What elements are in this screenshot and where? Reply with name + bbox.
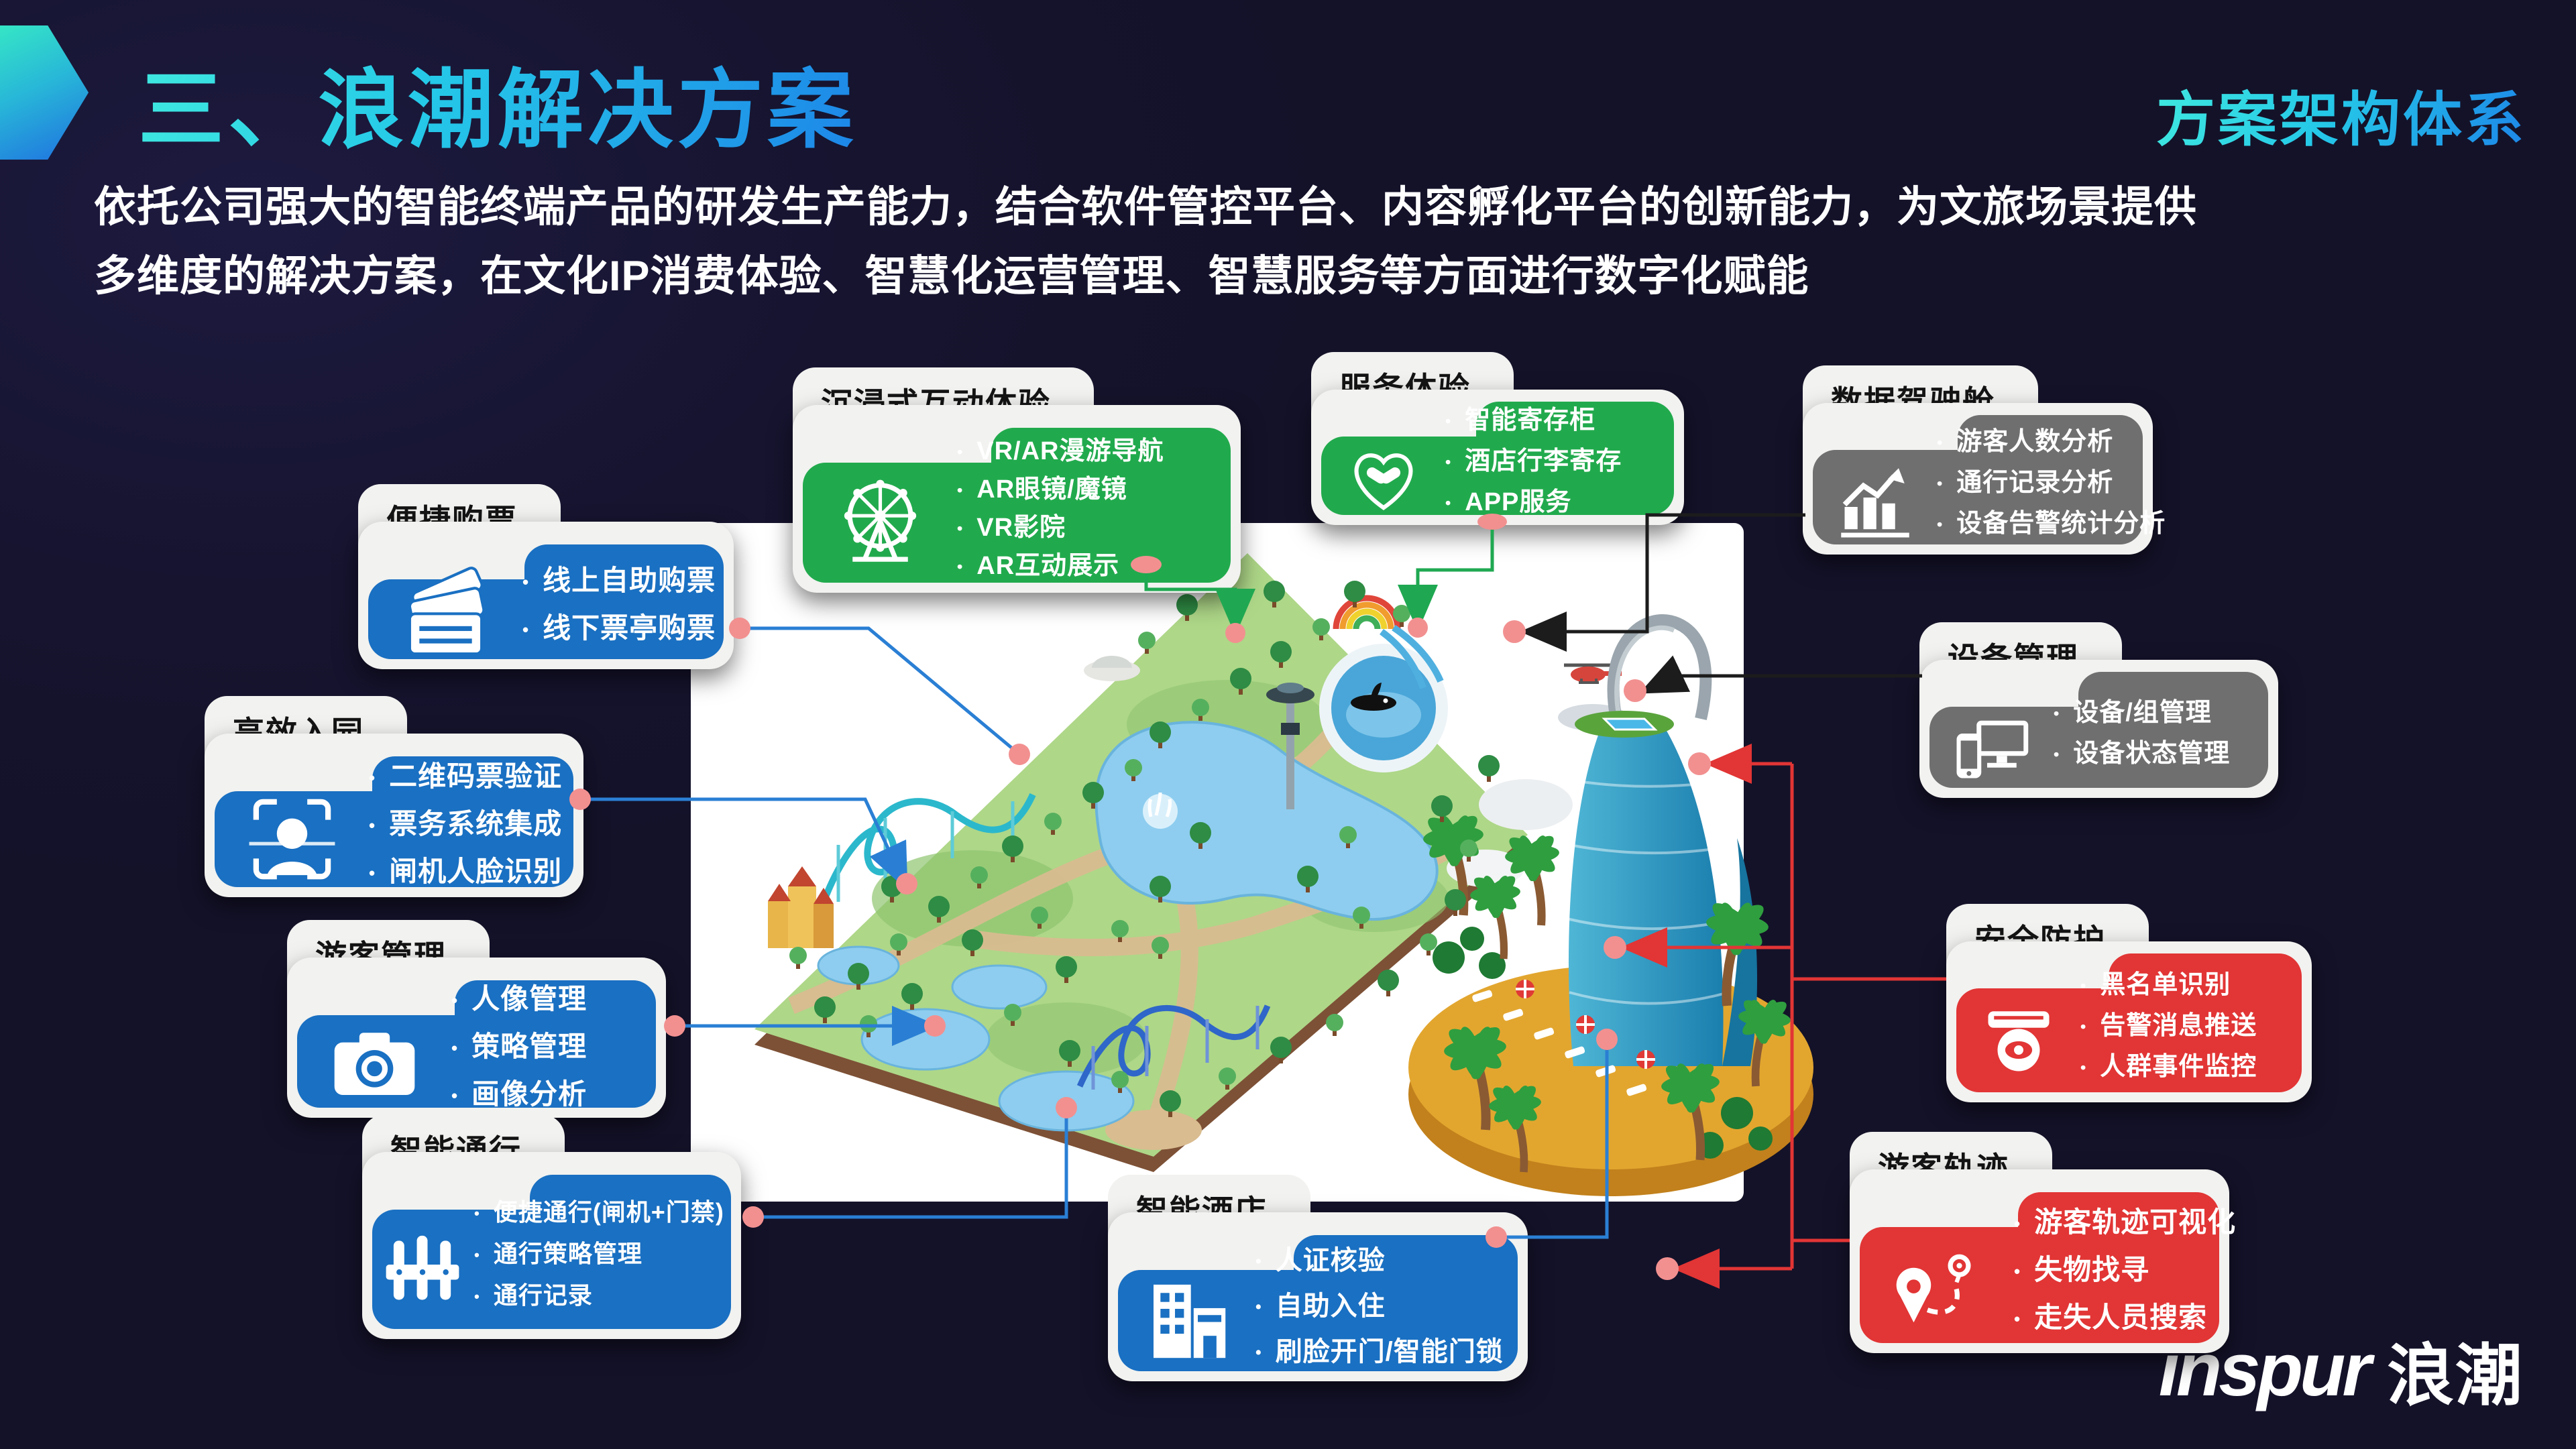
card-item: 黑名单识别 [2080, 964, 2292, 1000]
card-item: 线上自助购票 [522, 558, 714, 599]
page-title: 三、浪潮解决方案 [138, 40, 857, 164]
card-item: 线下票亭购票 [522, 605, 714, 646]
card-device-mgmt: 设备管理 设备/组管理 设备状态管理 [1919, 622, 2278, 798]
card-item: 通行策略管理 [474, 1234, 722, 1269]
card-item: 游客轨迹可视化 [2014, 1200, 2210, 1240]
chevron-accent-icon [0, 25, 89, 160]
card-item: 闸机人脸识别 [369, 849, 564, 890]
description: 依托公司强大的智能终端产品的研发生产能力，结合软件管控平台、内容孵化平台的创新能… [94, 173, 2508, 312]
camera-icon [297, 1015, 451, 1108]
card-item: 通行记录 [474, 1276, 722, 1311]
logo-text-cn: 浪潮 [2387, 1321, 2524, 1418]
card-ticketing: 便捷购票 线上自助购票 线下票亭购票 [358, 484, 734, 669]
card-item: 智能寄存柜 [1445, 399, 1665, 436]
card-item: 自助入住 [1255, 1284, 1508, 1323]
card-smart-hotel: 智能酒店 人证核验 自助入住 刷脸开门/智能 [1108, 1175, 1528, 1381]
face-scan-icon [215, 791, 369, 887]
gate-icon [372, 1210, 473, 1329]
card-item: 游客人数分析 [1937, 420, 2133, 457]
card-visitor-mgmt: 游客管理 人像管理 策略管理 画像分析 [287, 920, 666, 1118]
card-item: 人群事件监控 [2080, 1045, 2292, 1082]
description-line2: 多维度的解决方案，在文化IP消费体验、智慧化运营管理、智慧服务等方面进行数字化赋… [94, 242, 2508, 311]
card-smart-pass: 智能通行 便捷通行(闸机+门禁) 通行策略管理 通行记录 [362, 1114, 741, 1339]
card-item: APP服务 [1445, 481, 1665, 518]
route-icon [1860, 1227, 2014, 1343]
card-visitor-track: 游客轨迹 游客轨迹可视化 失物找寻 走失人员搜索 [1850, 1132, 2229, 1353]
cctv-icon [1956, 988, 2080, 1092]
card-item: AR眼镜/魔镜 [957, 468, 1221, 505]
card-item: 失物找寻 [2014, 1247, 2210, 1288]
card-item: 走失人员搜索 [2014, 1295, 2210, 1336]
ferris-wheel-icon [803, 463, 957, 583]
handshake-heart-icon [1321, 437, 1445, 515]
card-item: 人像管理 [451, 976, 647, 1017]
card-item: 酒店行李寄存 [1445, 440, 1665, 477]
card-data-cockpit: 数据驾驶舱 游客人数分析 通行记录分析 设备告警统计分析 [1803, 365, 2153, 555]
card-item: 通行记录分析 [1937, 461, 2133, 498]
card-item: VR影院 [957, 506, 1221, 543]
card-immersive: 沉浸式互动体验 VR/AR漫游导航 AR眼 [793, 367, 1241, 593]
card-item: 策略管理 [451, 1024, 647, 1065]
card-item: 票务系统集成 [369, 801, 564, 842]
card-service: 服务体验 智能寄存柜 酒店行李寄存 APP服务 [1311, 352, 1684, 525]
card-item: 设备/组管理 [2054, 691, 2259, 728]
description-line1: 依托公司强大的智能终端产品的研发生产能力，结合软件管控平台、内容孵化平台的创新能… [94, 173, 2508, 242]
devices-icon [1929, 707, 2054, 788]
card-item: 告警消息推送 [2080, 1004, 2292, 1041]
card-item: AR互动展示 [957, 544, 1221, 581]
card-item: 二维码票验证 [369, 754, 564, 795]
card-item: 便捷通行(闸机+门禁) [474, 1193, 722, 1228]
card-item: 设备状态管理 [2054, 732, 2259, 769]
trend-chart-icon [1813, 450, 1937, 544]
tickets-icon [368, 579, 522, 659]
hotel-icon [1118, 1270, 1255, 1371]
card-item: 设备告警统计分析 [1937, 502, 2133, 539]
corner-tag: 方案架构体系 [2156, 72, 2526, 158]
card-item: 画像分析 [451, 1071, 647, 1112]
card-entry: 高效入园 二维码票验证 票务系统集成 闸机人脸识别 [205, 696, 583, 897]
slide: 三、浪潮解决方案 方案架构体系 依托公司强大的智能终端产品的研发生产能力，结合软… [0, 0, 2576, 1449]
card-item: 刷脸开门/智能门锁 [1255, 1330, 1508, 1369]
card-item: VR/AR漫游导航 [957, 430, 1221, 467]
card-item: 人证核验 [1255, 1238, 1508, 1277]
card-security: 安全防护 黑名单识别 告警消息推送 人群事件监控 [1946, 904, 2312, 1102]
